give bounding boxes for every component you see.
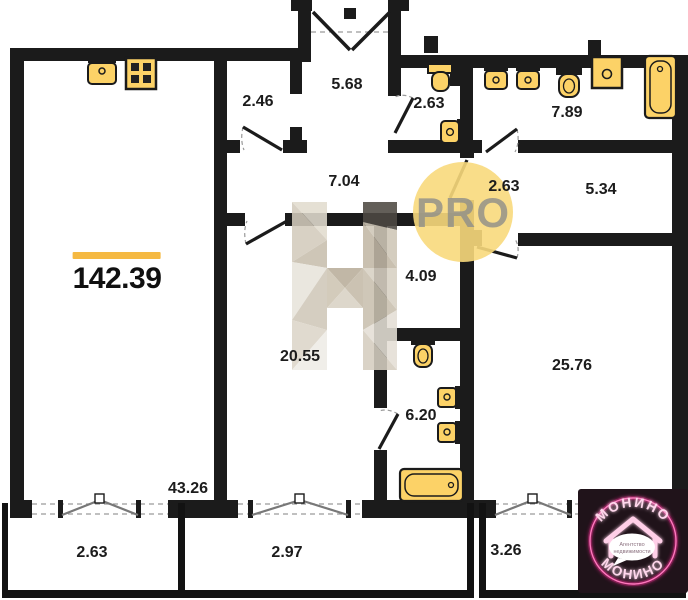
sink-icon — [484, 66, 508, 89]
wall-segment — [214, 61, 227, 500]
wall-segment — [291, 0, 312, 11]
door-arc — [379, 410, 398, 414]
wall-segment — [214, 140, 240, 153]
toilet-icon — [556, 66, 582, 97]
wall-segment — [518, 140, 674, 153]
door-leaf — [352, 12, 390, 50]
balcony-wall — [467, 503, 474, 598]
pro-watermark-text: PRO — [416, 189, 510, 236]
door-swing — [379, 410, 398, 449]
stove-icon — [126, 58, 156, 89]
sink-icon — [516, 66, 540, 89]
floorplan-stage: PRO 5.68 2.46 2.63 7.89 7.04 2.63 5.34 4… — [0, 0, 688, 600]
door-swing — [395, 95, 413, 133]
accent-line — [73, 252, 161, 259]
door-swing — [242, 127, 282, 150]
balcony-wall — [184, 590, 474, 598]
room-area-label-living-kitchen: 43.26 — [168, 480, 208, 498]
door-swing — [245, 221, 287, 244]
room-area-label-hall-inner: 2.63 — [488, 178, 519, 196]
door-arc — [395, 95, 413, 98]
wall-segment — [290, 61, 302, 94]
wall-segment — [10, 500, 26, 518]
wall-segment — [588, 40, 601, 57]
wall-segment — [168, 500, 176, 518]
agency-logo-image: МОНИНО МОНИНО Агентство недвижимости — [578, 489, 688, 593]
total-area-value: 142.39 — [73, 262, 162, 296]
wall-segment — [362, 500, 370, 518]
agency-logo: МОНИНО МОНИНО Агентство недвижимости — [578, 489, 688, 593]
wall-segment — [10, 48, 24, 518]
wall-segment — [518, 233, 674, 246]
wall-segment — [374, 450, 387, 500]
room-area-label-room-small: 4.09 — [405, 268, 436, 286]
door-arc — [242, 127, 244, 150]
logo-tagline-line1: Агентство — [619, 542, 644, 548]
room-area-label-bathroom-mid: 6.20 — [405, 407, 436, 425]
balcony-wall — [479, 503, 486, 598]
door-arc — [515, 239, 518, 258]
room-area-label-corridor: 7.04 — [328, 173, 359, 191]
pro-watermark: PRO — [413, 162, 513, 262]
door-arc — [515, 129, 518, 152]
wall-segment — [388, 0, 409, 11]
window — [238, 494, 362, 518]
window — [491, 494, 578, 518]
door-leaf — [395, 98, 413, 133]
counter-sink-icon — [592, 57, 622, 88]
door-leaf — [486, 129, 517, 152]
room-area-label-hall-entry: 5.68 — [331, 76, 362, 94]
logo-tagline-line2: недвижимости — [613, 549, 650, 555]
window — [32, 494, 168, 518]
door-leaf — [246, 221, 287, 244]
door-leaf — [379, 414, 398, 449]
windows-layer — [32, 494, 578, 518]
balcony-wall — [2, 503, 8, 598]
room-area-label-balcony-right: 3.26 — [490, 542, 521, 560]
wall-segment — [424, 36, 438, 53]
room-area-label-wardrobe: 5.34 — [585, 181, 616, 199]
room-area-label-balcony-left: 2.63 — [76, 544, 107, 562]
entrance-door-swing — [311, 8, 390, 50]
room-area-label-bathroom-top: 7.89 — [551, 104, 582, 122]
door-arc — [245, 221, 247, 244]
bathtub-icon — [400, 469, 463, 501]
kitchen-sink-icon — [88, 58, 116, 84]
door-swing — [486, 129, 518, 152]
room-area-label-hallway-small: 2.46 — [242, 93, 273, 111]
room-area-label-balcony-mid: 2.97 — [271, 544, 302, 562]
balcony-wall — [2, 590, 185, 598]
room-area-label-wc-top: 2.63 — [413, 95, 444, 113]
wall-segment — [388, 58, 401, 96]
total-area: 142.39 — [73, 252, 162, 296]
wall-segment — [24, 500, 32, 518]
balcony-wall — [178, 503, 185, 598]
room-area-label-bedroom-mid: 20.55 — [280, 348, 320, 366]
sink-icon — [441, 119, 462, 144]
toilet-icon — [411, 335, 435, 367]
wall-segment — [227, 213, 245, 226]
letter-h-watermark — [292, 202, 397, 370]
wall-segment — [672, 55, 688, 518]
door-leaf — [243, 127, 282, 150]
wall-segment — [283, 140, 307, 153]
sink-icon — [438, 421, 462, 444]
wall-segment — [230, 500, 238, 518]
sink-icon — [438, 386, 462, 409]
wall-segment — [460, 140, 474, 158]
bathtub-icon — [645, 56, 676, 118]
room-area-label-bedroom-right: 25.76 — [552, 357, 592, 375]
